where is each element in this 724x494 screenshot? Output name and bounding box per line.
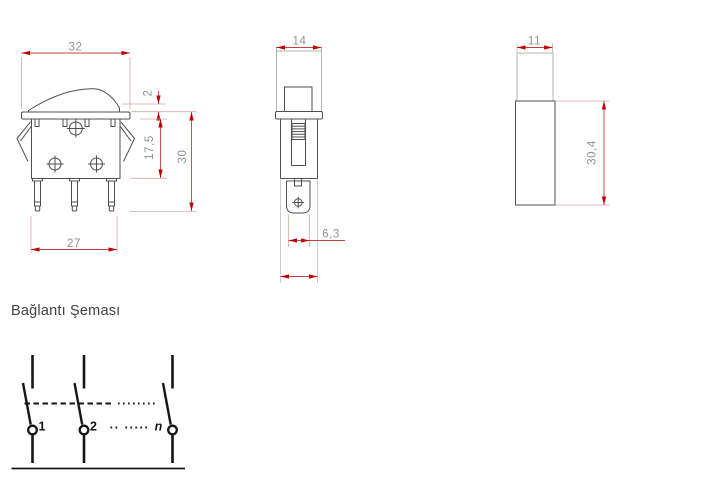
dim-text-27: 27 <box>67 238 81 250</box>
body-side <box>281 119 318 179</box>
dim-text-30: 30 <box>177 150 189 164</box>
dimension-height-30-4: 30,4 <box>556 101 610 205</box>
snap-in-clip-left <box>17 122 32 162</box>
technical-drawing-page: 32 27 2 17,5 <box>0 0 724 494</box>
dim-text-17-5: 17,5 <box>144 135 156 160</box>
actuator-button <box>285 87 313 112</box>
center-marks <box>47 120 106 173</box>
terminal-notch <box>295 179 302 187</box>
rocker-above-panel <box>517 53 553 101</box>
front-view: 32 27 2 17,5 <box>17 42 197 254</box>
pole-label-n: n <box>155 420 163 434</box>
dimension-depth: 14 <box>277 36 322 48</box>
end-view: 11 30,4 <box>516 36 610 206</box>
mounting-flange <box>22 112 131 119</box>
flange-side <box>276 112 323 120</box>
side-view: 14 6,3 <box>276 36 346 284</box>
connection-schematic: 1 2 n .. ..... <box>12 355 186 469</box>
ellipsis-dots: .. ..... <box>110 418 150 432</box>
clip-spring-hatch <box>292 124 305 140</box>
locking-ribs <box>35 119 115 127</box>
dim-text-2: 2 <box>143 90 155 97</box>
dimension-width-11: 11 <box>517 36 553 53</box>
rocker-actuator-profile <box>29 89 120 112</box>
terminals <box>33 179 117 212</box>
dimension-overall-height: 30 <box>130 112 197 212</box>
dimension-body-height: 17,5 <box>131 119 167 178</box>
dim-text-30-4: 30,4 <box>587 140 599 165</box>
dimension-rocker-protrusion: 2 <box>122 90 197 120</box>
schematic-title: Bağlantı Şeması <box>11 303 120 319</box>
dim-text-14: 14 <box>293 36 307 48</box>
dim-text-11: 11 <box>528 36 541 48</box>
dim-text-6-3: 6,3 <box>322 229 340 241</box>
pole-label-1: 1 <box>39 420 46 434</box>
dim-text-32: 32 <box>69 42 83 54</box>
pole-label-2: 2 <box>90 420 97 434</box>
drawing-canvas: 32 27 2 17,5 <box>0 0 724 494</box>
switch-pole-n <box>163 355 177 463</box>
switch-pole-1 <box>23 355 37 463</box>
terminal-center-mark <box>292 197 304 209</box>
body-below-panel <box>516 101 556 205</box>
switch-pole-2 <box>75 355 89 463</box>
dimension-bottom-width: 27 <box>31 216 117 254</box>
snap-in-clip-right <box>120 122 135 162</box>
dimension-terminal-width: 6,3 <box>289 215 346 248</box>
